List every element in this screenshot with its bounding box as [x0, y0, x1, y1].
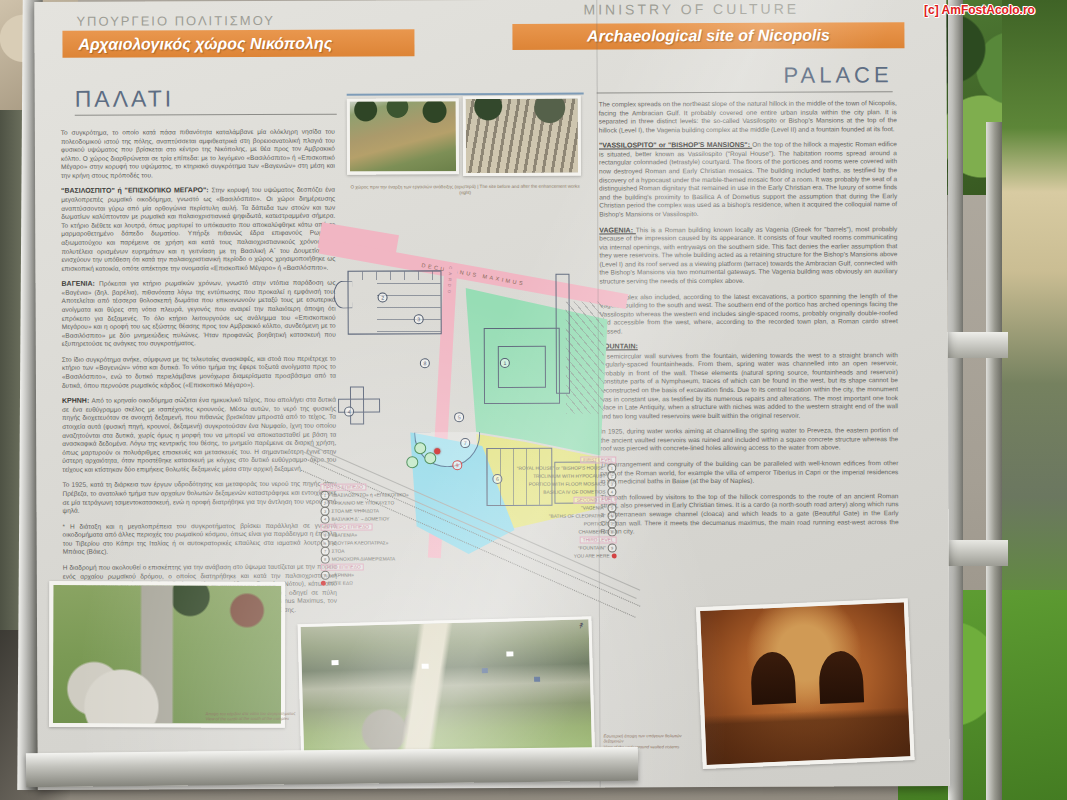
section-text: * Η διάταξη και η μεγαλοπρέπεια του συγκ… — [63, 521, 337, 555]
map-marker-7: 7 — [460, 438, 470, 448]
ministry-label-greek: ΥΠΟΥΡΓΕΙΟ ΠΟΛΙΤΙΣΜΟΥ — [76, 13, 275, 29]
cistern-arch-right — [818, 650, 864, 704]
section-heading: "VASSILOSPITO" or "BISHOP'S MANSIONS": — [599, 141, 752, 149]
paragraph: The path followed by visitors to the top… — [600, 491, 898, 536]
red-dot-icon — [321, 580, 326, 585]
you-are-here-dot — [434, 448, 440, 454]
red-dot-icon — [612, 553, 617, 558]
map-marker-1: 1 — [500, 358, 510, 368]
section-heading: ΚΡΗΝΗ: — [62, 397, 91, 404]
map-marker-8: 8 — [420, 358, 430, 368]
page-title-english: PALACE — [595, 62, 893, 89]
section-text: Το συγκρότημα, το οποίο κατά πάσα πιθανό… — [61, 128, 335, 179]
section-text: The arrangement and congruity of the bui… — [600, 459, 898, 484]
title-rule-english — [597, 91, 893, 93]
tree-symbol — [424, 452, 436, 464]
map-marker-2: 2 — [378, 292, 388, 302]
paragraph: In 1925, during water works aiming at ch… — [600, 426, 898, 454]
paragraph: Στο ίδιο συγκρότημα ανήκε, σύμφωνα με τι… — [62, 354, 336, 391]
building-apse — [334, 281, 353, 309]
section-heading: ΒΑΓΕΝΙΑ: — [61, 280, 99, 287]
site-banner-greek: Αρχαιολογικός χώρος Νικόπολης — [62, 29, 414, 58]
right-metal-post-outer — [986, 122, 1002, 800]
photo-vaulted-cistern — [696, 598, 915, 769]
paragraph: "VASSILOSPITO" or "BISHOP'S MANSIONS": O… — [599, 140, 897, 220]
paragraph: FOUNTAIN: A semicircular wall survives f… — [600, 341, 898, 421]
map-marker-3: 3 — [414, 314, 424, 324]
paragraph: ΒΑΓΕΝΙΑ: Πρόκειται για κτήριο ρωμαϊκών χ… — [61, 278, 335, 349]
site-banner-english-text: Archaeological site of Nicopolis — [587, 27, 830, 46]
information-panel: ΥΠΟΥΡΓΕΙΟ ΠΟΛΙΤΙΣΜΟΥ Αρχαιολογικός χώρος… — [34, 0, 949, 790]
map-legend-greek: ΠΡΩΤΟ ΕΠΙΠΕΔΟ 1«ΒΑΣΙΛΟΣΠΙΤΟ» ή «ΕΠΙΣΚΟΠΙ… — [320, 482, 444, 587]
tree-symbol — [406, 456, 418, 468]
paragraph: The complex spreads on the northeast slo… — [599, 98, 897, 135]
section-text: A semicircular wall survives from the fo… — [600, 351, 898, 419]
site-banner-greek-text: Αρχαιολογικός χώρος Νικόπολης — [62, 34, 332, 53]
right-metal-post-inner — [948, 0, 963, 800]
site-plan-map: DECUMANUS MAXIMUS CARDO — [317, 209, 621, 612]
greek-text-column: Το συγκρότημα, το οποίο κατά πάσα πιθανό… — [61, 127, 337, 622]
map-marker-9: 9 — [452, 460, 462, 470]
right-frame-connector-bottom — [946, 540, 1008, 566]
cistern-arch-left — [750, 651, 796, 705]
building-plan-basilica — [347, 270, 441, 334]
section-text: Πρόκειται για κτήριο ρωμαϊκών χρόνων, γν… — [62, 279, 336, 347]
site-banner-english: Archaeological site of Nicopolis — [512, 22, 904, 50]
paragraph: "ΒΑΣΙΛΟΣΠΙΤΟ" ή "ΕΠΙΣΚΟΠΙΚΟ ΜΕΓΑΡΟ": Στη… — [61, 185, 335, 273]
photo-hillock-before-works — [347, 98, 459, 174]
page-title-greek: ΠΑΛΑΤΙ — [75, 85, 175, 112]
corridor-outline — [555, 274, 570, 394]
section-text: In 1925, during water works aiming at ch… — [600, 427, 898, 452]
section-heading: "ΒΑΣΙΛΟΣΠΙΤΟ" ή "ΕΠΙΣΚΟΠΙΚΟ ΜΕΓΑΡΟ": — [61, 187, 211, 195]
paragraph: Το 1925, κατά τη διάρκεια των έργων υδρο… — [62, 479, 336, 516]
bottom-frame-rail — [26, 747, 638, 787]
section-text: Από το κρηναίο οικοδόμημα σώζεται ένα ημ… — [62, 396, 336, 473]
photo-panorama-site: ↟ — [297, 616, 595, 760]
title-rule-greek — [75, 114, 337, 116]
map-marker-5: 5 — [454, 412, 464, 422]
ministry-label-english: MINISTRY OF CULTURE — [541, 0, 841, 17]
section-text: The path followed by visitors to the top… — [600, 492, 898, 535]
watermark-text: [c] AmFostAcolo.ro — [924, 3, 1035, 17]
paragraph: The complex also included, according to … — [600, 291, 898, 336]
section-text: Το 1925, κατά τη διάρκεια των έργων υδρο… — [62, 480, 336, 514]
section-heading: FOUNTAIN: — [600, 341, 898, 352]
section-text: The complex also included, according to … — [600, 292, 898, 335]
paragraph: * Η διάταξη και η μεγαλοπρέπεια του συγκ… — [63, 520, 337, 557]
paragraph: ΚΡΗΝΗ: Από το κρηναίο οικοδόμημα σώζεται… — [62, 395, 336, 474]
tree-symbol — [414, 442, 426, 454]
section-text: On the top of the hillock a majestic Rom… — [599, 141, 897, 218]
cistern-caption-greek: Εσωτερική άποψη των υπόγειων θολωτών δεξ… — [603, 733, 695, 744]
section-text: Στο ίδιο συγκρότημα ανήκε, σύμφωνα με τι… — [62, 355, 336, 389]
paragraph: VAGENIA: This is a Roman building known … — [599, 224, 897, 286]
north-arrow-icon: ↟ — [577, 621, 586, 632]
section-text: The complex spreads on the northeast slo… — [599, 99, 897, 133]
top-photos-caption: Ο χώρος πριν την έναρξη των εργασιών ανά… — [347, 184, 583, 196]
english-text-column: The complex spreads on the northeast slo… — [599, 98, 899, 542]
paragraph: Το συγκρότημα, το οποίο κατά πάσα πιθανό… — [61, 127, 335, 181]
section-text: Στην κορυφή του υψώματος δεσπόζει ένα με… — [61, 186, 335, 271]
map-marker-4: 4 — [344, 407, 354, 417]
building-plan-small-b — [350, 387, 364, 425]
legend-item-you-are-here: ΕΙΣΤΕ ΕΔΩ — [321, 578, 445, 587]
photo-scene: ΥΠΟΥΡΓΕΙΟ ΠΟΛΙΤΙΣΜΟΥ Αρχαιολογικός χώρος… — [0, 0, 1067, 800]
right-frame-connector-top — [946, 332, 1008, 358]
photo-aerial-cardo — [49, 581, 285, 728]
section-text: This is a Roman building known locally a… — [599, 225, 897, 285]
paragraph: The arrangement and congruity of the bui… — [600, 458, 898, 486]
photo-excavated-steps — [463, 96, 581, 177]
